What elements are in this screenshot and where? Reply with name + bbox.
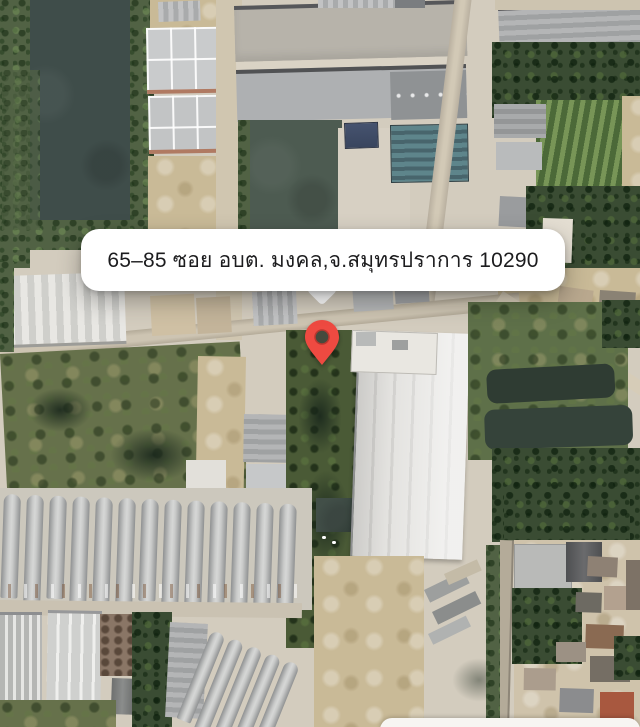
canal-pond-corner bbox=[316, 498, 352, 532]
satellite-map[interactable]: 65–85 ซอย อบต. มงคล,จ.สมุทรปราการ 10290 bbox=[0, 0, 640, 727]
house-roof-7 bbox=[524, 668, 556, 691]
ground-top-right-corner bbox=[495, 0, 640, 10]
warehouse-roof-mid-a bbox=[243, 414, 292, 463]
shed-roof-right-road-a bbox=[494, 104, 546, 138]
house-roof-5 bbox=[556, 642, 586, 662]
building-roof-tan-b bbox=[196, 296, 232, 334]
trees-above-residential bbox=[504, 492, 630, 544]
boat-dot-a bbox=[322, 536, 326, 539]
vegetation-pond-center-edge bbox=[238, 120, 250, 234]
building-roof-navy bbox=[344, 122, 379, 149]
warehouse-roof-skylights-b bbox=[46, 610, 102, 707]
rooftop-dark-top-edge bbox=[395, 0, 425, 8]
house-roof-10 bbox=[626, 560, 640, 610]
warehouse-roof-grid-a bbox=[146, 27, 219, 94]
rooftop-unit-b bbox=[392, 340, 408, 350]
house-roof-8 bbox=[559, 688, 594, 713]
warehouse-roof-skylights-a bbox=[0, 612, 42, 700]
map-pin[interactable] bbox=[303, 319, 341, 367]
pin-hole bbox=[315, 330, 329, 344]
marsh-pond-a bbox=[28, 388, 92, 432]
trees-residential-b bbox=[614, 636, 640, 680]
boat-dot-b bbox=[332, 541, 336, 544]
fish-pond-strip-b bbox=[484, 405, 633, 450]
marsh-pond-b bbox=[110, 428, 196, 482]
map-pin-icon bbox=[303, 319, 341, 367]
shed-roof-right-road-b bbox=[496, 142, 542, 170]
shed-roof-roadside bbox=[252, 290, 298, 326]
shed-roof bbox=[0, 494, 21, 599]
address-text: 65–85 ซอย อบต. มงคล,จ.สมุทรปราการ 10290 bbox=[107, 244, 538, 277]
house-roof-1 bbox=[587, 556, 618, 578]
dirt-lot-bottom-center bbox=[314, 556, 424, 727]
grass-bottom-left-corner bbox=[0, 700, 116, 727]
vegetation-lane-edge bbox=[486, 545, 500, 727]
debris-lot bbox=[100, 614, 132, 676]
factory-roof-teal bbox=[390, 124, 469, 183]
warehouse-roof-long-north bbox=[234, 0, 467, 62]
marsh-patch bbox=[2, 70, 40, 230]
yard-clutter-row bbox=[8, 584, 298, 598]
building-roof-tan-a bbox=[150, 294, 196, 336]
warehouse-roof-grid-b bbox=[148, 95, 219, 154]
house-roof-3 bbox=[575, 592, 602, 613]
fish-pond-strip-a bbox=[486, 363, 616, 404]
address-callout[interactable]: 65–85 ซอย อบต. มงคล,จ.สมุทรปราการ 10290 bbox=[81, 229, 565, 291]
vegetation-left-edge-mid bbox=[0, 262, 14, 352]
canal-pond-a bbox=[298, 378, 342, 454]
trees-right-edge-road bbox=[602, 300, 640, 348]
small-roof-top bbox=[158, 1, 201, 22]
bottom-sheet-peek[interactable] bbox=[380, 718, 640, 727]
pond-center bbox=[242, 120, 342, 234]
shack-roof-c bbox=[428, 616, 471, 645]
rooftop-unit-a bbox=[356, 332, 376, 346]
